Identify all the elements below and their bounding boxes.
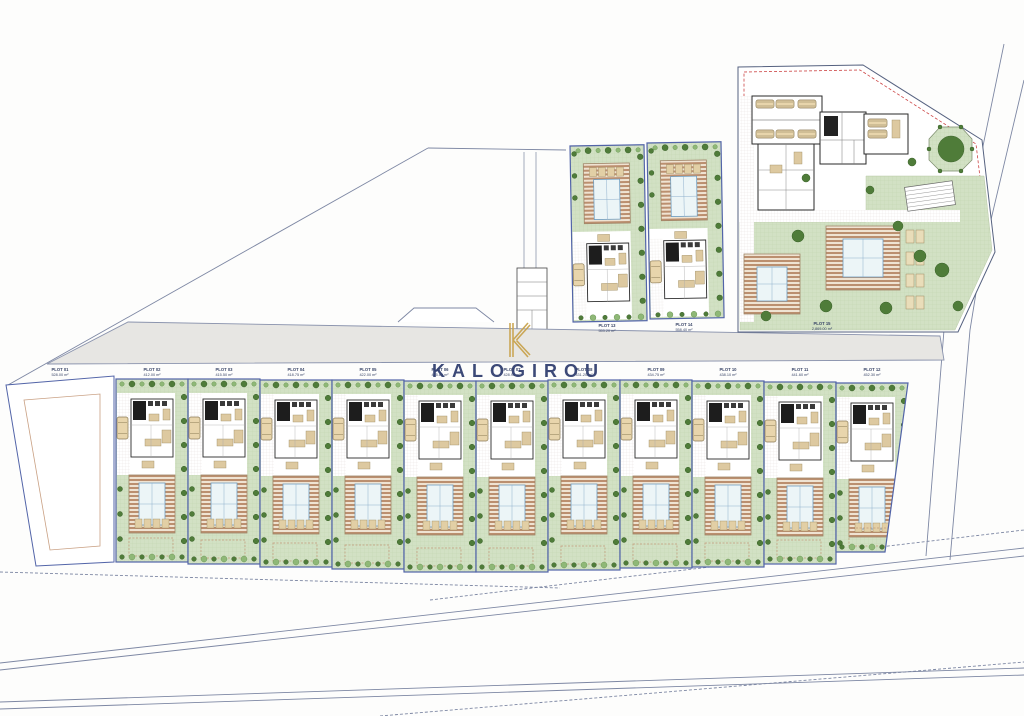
plot-label: PLOT 12 xyxy=(864,367,882,372)
plot-label: PLOT 10 xyxy=(720,367,738,372)
plot-area-label: 415.50 m² xyxy=(215,373,233,377)
villa-plot-plot-13 xyxy=(570,145,647,322)
plot-label: PLOT 13 xyxy=(599,323,617,328)
utility-structure xyxy=(517,268,547,330)
plot-label: PLOT 04 xyxy=(288,367,306,372)
villa-plot-plot-04 xyxy=(260,380,332,567)
plot-area-label: 2,869.00 m² xyxy=(812,327,833,331)
villa-plot-plot-12 xyxy=(836,383,908,552)
plot-area-label: 431.20 m² xyxy=(575,373,593,377)
plot-area-label: 553.20 m² xyxy=(598,329,616,333)
villa-plot-plot-07 xyxy=(476,381,548,572)
plot-area-label: 412.00 m² xyxy=(143,373,161,377)
plot-label: PLOT 15 xyxy=(814,321,832,326)
plot-label: PLOT 11 xyxy=(792,367,809,372)
site-plan-drawing: PLOT 01528.00 m²PLOT 02412.00 m²PLOT 034… xyxy=(0,0,1024,716)
villa-plot-plot-14 xyxy=(647,142,724,319)
plot-area-label: 441.60 m² xyxy=(791,373,809,377)
plot-label: PLOT 09 xyxy=(648,367,666,372)
villa-plot-plot-02 xyxy=(116,379,188,562)
plot-label: PLOT 03 xyxy=(216,367,234,372)
site-plan-canvas: PLOT 01528.00 m²PLOT 02412.00 m²PLOT 034… xyxy=(0,0,1024,716)
empty-plot xyxy=(6,376,114,566)
plot-label: PLOT 02 xyxy=(144,367,162,372)
complex-small-pool xyxy=(744,254,800,314)
plot-label: PLOT 06 xyxy=(432,367,450,372)
plot-area-label: 558.40 m² xyxy=(675,328,693,332)
plot-area-label: 418.75 m² xyxy=(287,373,305,377)
villa-plot-plot-10 xyxy=(692,381,764,567)
villa-plot-plot-03 xyxy=(188,379,260,564)
plot-area-label: 428.90 m² xyxy=(503,373,521,377)
villa-plot-plot-09 xyxy=(620,380,692,568)
villa-plot-plot-06 xyxy=(404,381,476,572)
plot-label: PLOT 08 xyxy=(576,367,594,372)
villa-plot-plot-11 xyxy=(764,382,836,564)
plot-label: PLOT 01 xyxy=(52,367,70,372)
plot-area-label: 528.00 m² xyxy=(51,373,69,377)
plot-label: PLOT 14 xyxy=(676,322,694,327)
villa-plot-plot-05 xyxy=(332,380,404,569)
plot-area-label: 422.00 m² xyxy=(359,373,377,377)
plot-label: PLOT 05 xyxy=(360,367,378,372)
plot-area-label: 425.60 m² xyxy=(431,373,449,377)
plot-area-label: 434.75 m² xyxy=(647,373,665,377)
villa-plot-plot-08 xyxy=(548,380,620,570)
plot-label: PLOT 07 xyxy=(504,367,522,372)
plot-area-label: 438.10 m² xyxy=(719,373,737,377)
plot-area-label: 452.30 m² xyxy=(863,373,881,377)
complex-main-pool xyxy=(826,226,900,290)
